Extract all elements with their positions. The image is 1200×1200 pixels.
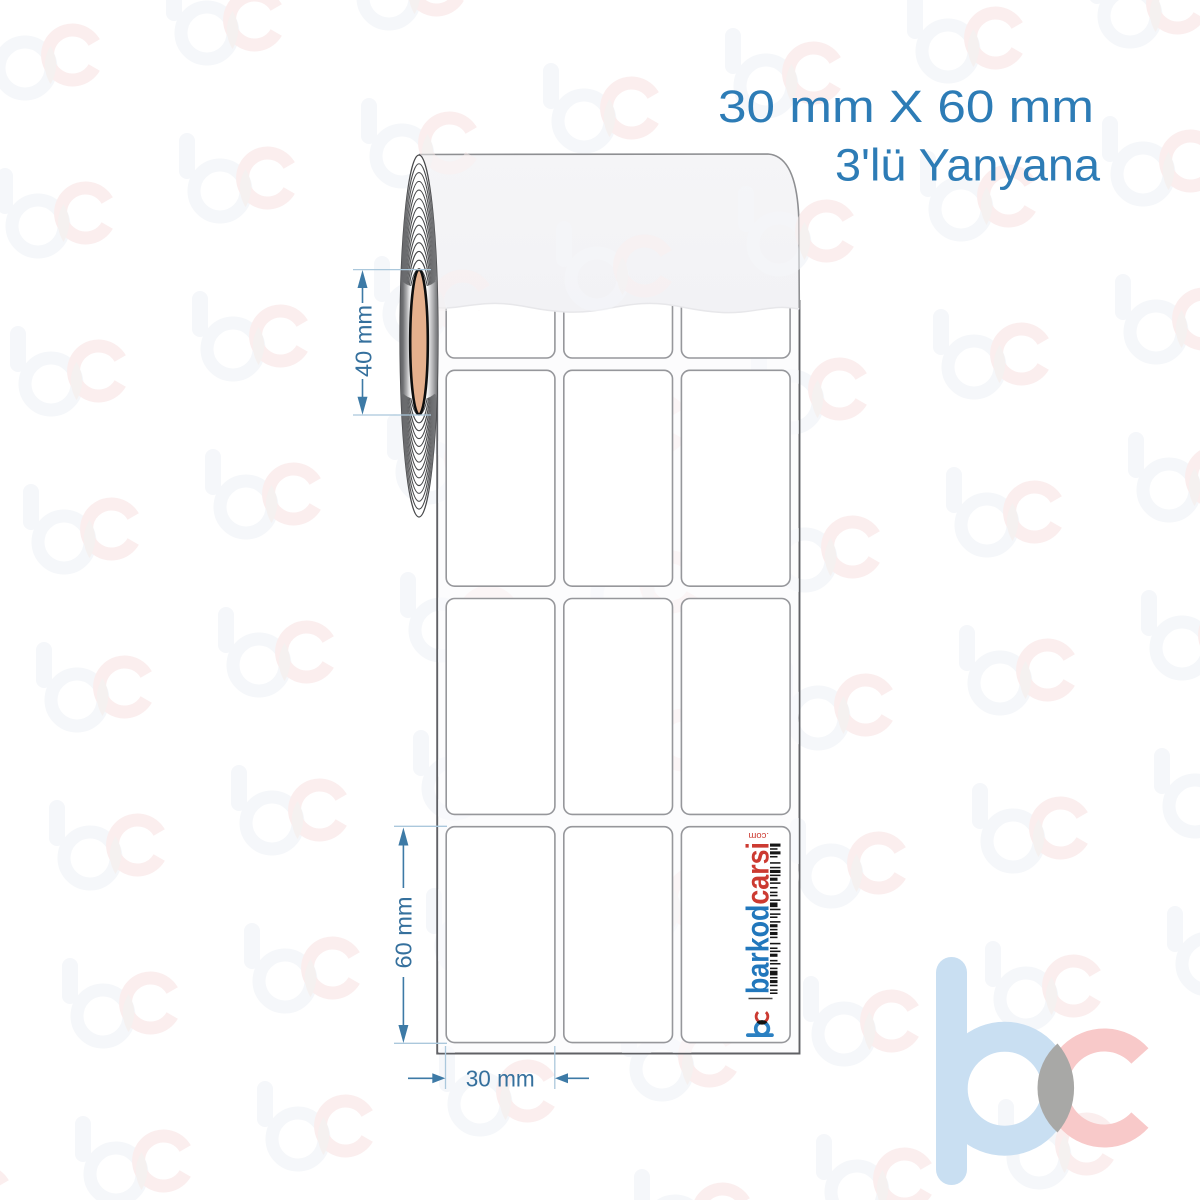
svg-text:30 mm: 30 mm [466,1066,535,1092]
svg-text:3'lü Yanyana: 3'lü Yanyana [835,140,1101,191]
svg-text:.com: .com [748,830,769,841]
svg-text:40 mm: 40 mm [351,305,377,377]
svg-text:30 mm X 60 mm: 30 mm X 60 mm [718,81,1094,132]
svg-text:60 mm: 60 mm [391,897,417,969]
